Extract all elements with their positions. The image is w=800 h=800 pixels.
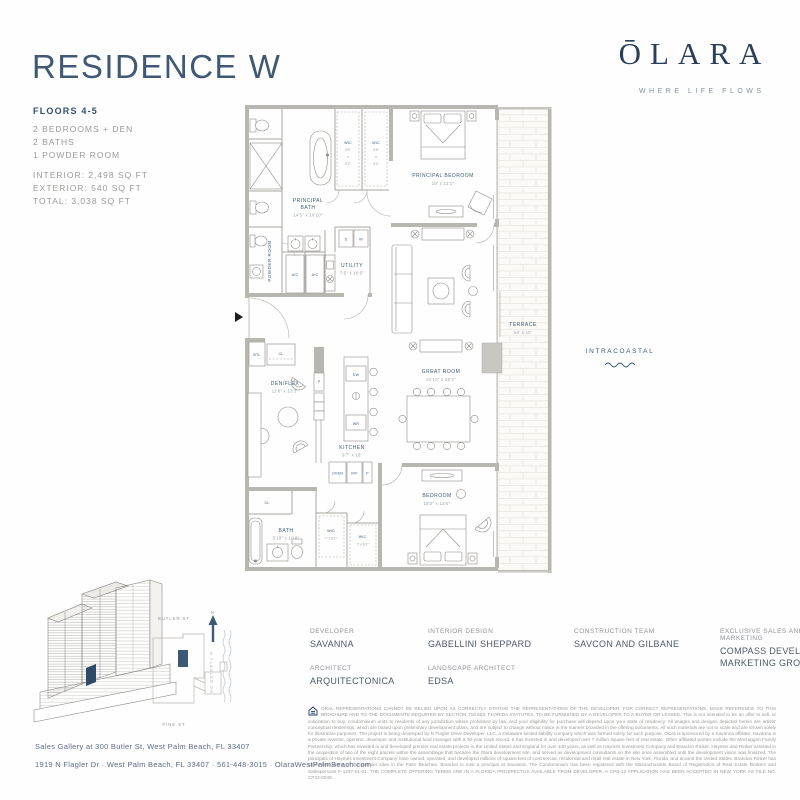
brand-logo: ŌLARA [600, 36, 780, 72]
north-arrow-icon: N [209, 610, 218, 642]
svg-text:5'10" x 10'8": 5'10" x 10'8" [273, 536, 300, 541]
svg-text:18'2" x 12'0": 18'2" x 12'0" [424, 501, 451, 506]
credit-architect: ARCHITECT ARQUITECTONICA [310, 665, 402, 687]
credit-sales-marketing: EXCLUSIVE SALES AND MARKETING COMPASS DE… [720, 628, 800, 669]
page-title: RESIDENCE W [32, 48, 281, 86]
feature-list: 2 BEDROOMS + DEN 2 BATHS 1 POWDER ROOM [33, 123, 133, 162]
feature-powder: 1 POWDER ROOM [33, 149, 133, 162]
credits-column-4: EXCLUSIVE SALES AND MARKETING COMPASS DE… [720, 628, 800, 687]
svg-text:11'8" x 13'3": 11'8" x 13'3" [272, 389, 299, 394]
svg-text:18' x 13'1": 18' x 13'1" [432, 181, 455, 186]
brochure-page: RESIDENCE W FLOORS 4-5 2 BEDROOMS + DEN … [0, 0, 800, 800]
label-den: DEN/FLEX [271, 381, 300, 387]
label-principal-bath: PRINCIPAL [293, 198, 324, 204]
credits-column-1: DEVELOPER SAVANNA ARCHITECT ARQUITECTONI… [310, 628, 402, 687]
label-wic-b: WIC [372, 141, 380, 145]
intracoastal-label: INTRACOASTAL [575, 348, 665, 355]
principal-bedroom-furniture [410, 111, 492, 217]
label-principal-bedroom: PRINCIPAL BEDROOM [412, 173, 474, 179]
svg-text:21'10" x 26'2": 21'10" x 26'2" [426, 377, 456, 382]
label-cl-bath: CL [264, 501, 269, 505]
flagler-dr-label: N FLAGLER DR [209, 652, 213, 694]
svg-text:7' x 6'1": 7' x 6'1" [325, 537, 338, 541]
label-wr: WR [353, 422, 360, 426]
svg-text:BATH: BATH [301, 205, 316, 211]
svg-text:9'2": 9'2" [373, 162, 380, 166]
credit-developer: DEVELOPER SAVANNA [310, 628, 402, 650]
credit-construction: CONSTRUCTION TEAM SAVCON AND GILBANE [574, 628, 694, 650]
svg-text:14'5" x 10'10": 14'5" x 10'10" [293, 213, 323, 218]
label-pantry-2: P [366, 472, 369, 476]
butler-st-label: BUTLER ST [158, 616, 190, 621]
feature-baths: 2 BATHS [33, 136, 133, 149]
svg-text:x: x [375, 155, 377, 159]
bedroom2-furniture [408, 470, 495, 565]
brand-tagline: WHERE LIFE FLOWS [620, 88, 780, 95]
residence-w-highlight [178, 650, 188, 667]
project-credits: DEVELOPER SAVANNA ARCHITECT ARQUITECTONI… [310, 628, 800, 687]
area-list: INTERIOR: 2,498 SQ FT EXTERIOR: 540 SQ F… [33, 169, 148, 208]
terrace-area [498, 107, 552, 573]
area-total: TOTAL: 3,038 SQ FT [33, 195, 148, 208]
contact-line: 1919 N Flagler Dr · West Palm Beach, FL … [35, 760, 371, 769]
label-pantry-1: P [318, 380, 321, 384]
label-ac-2: A/C [312, 273, 319, 277]
label-kitchen: KITCHEN [339, 445, 364, 451]
bath2-fixtures [249, 518, 303, 564]
svg-text:7'5" x 10'5": 7'5" x 10'5" [340, 271, 364, 276]
sales-gallery-address: Sales Gallery at 300 Butler St, West Pal… [35, 742, 250, 751]
credits-column-2: INTERIOR DESIGN GABELLINI SHEPPARD LANDS… [428, 628, 548, 687]
label-wic-c: WIC [327, 529, 335, 533]
label-utility: UTILITY [341, 263, 363, 269]
feature-bedrooms: 2 BEDROOMS + DEN [33, 123, 133, 136]
label-washer: W [359, 238, 363, 242]
label-wic-d: WIC [359, 535, 367, 539]
entry-arrow-icon [235, 312, 243, 322]
area-interior: INTERIOR: 2,498 SQ FT [33, 169, 148, 182]
label-ac-1: A/C [292, 273, 299, 277]
label-wic-a: WIC [344, 141, 352, 145]
label-powder-room: POWDER ROOM [267, 240, 272, 281]
svg-text:54' x 10': 54' x 10' [514, 330, 532, 335]
svg-text:4'9": 4'9" [345, 148, 352, 152]
disclaimer-text: ORAL REPRESENTATIONS CANNOT BE RELIED UP… [308, 706, 776, 780]
great-room-furniture [392, 228, 478, 450]
site-map: BUTLER ST PINE ST N N FLAGLER DR [150, 600, 250, 735]
label-bedroom2: BEDROOM [422, 493, 451, 499]
floor-plan: PRINCIPAL BATH 14'5" x 10'10" WIC 4'9" x… [230, 95, 570, 595]
credit-landscape-architect: LANDSCAPE ARCHITECT EDSA [428, 665, 548, 687]
label-dw: DW [353, 373, 360, 377]
label-great-room: GREAT ROOM [422, 369, 461, 375]
label-bath2: BATH [279, 528, 294, 534]
svg-text:9'7" x 16': 9'7" x 16' [342, 453, 362, 458]
label-dryer: D [345, 238, 348, 242]
shoreline-waves [220, 630, 231, 702]
label-cl-foyer: CL [278, 352, 283, 356]
wave-icon [603, 360, 637, 370]
pine-st-label: PINE ST [162, 722, 185, 727]
svg-text:N: N [211, 610, 215, 615]
area-exterior: EXTERIOR: 540 SQ FT [33, 182, 148, 195]
label-rf: R/F [351, 472, 358, 476]
credits-column-3: CONSTRUCTION TEAM SAVCON AND GILBANE [574, 628, 694, 687]
legal-disclaimer: ORAL REPRESENTATIONS CANNOT BE RELIED UP… [308, 706, 776, 781]
equal-housing-icon [308, 706, 318, 716]
floors-label: FLOORS 4-5 [33, 106, 98, 116]
svg-text:4'9": 4'9" [373, 148, 380, 152]
kitchen-fixtures [314, 357, 377, 483]
svg-text:9'2": 9'2" [345, 162, 352, 166]
label-oven: OVEN [332, 472, 343, 476]
svg-text:x: x [347, 155, 349, 159]
label-terrace: TERRACE [509, 322, 537, 328]
credit-interior-design: INTERIOR DESIGN GABELLINI SHEPPARD [428, 628, 548, 650]
svg-text:7' x 6'1": 7' x 6'1" [356, 543, 369, 547]
label-btl: BTL [253, 353, 260, 357]
